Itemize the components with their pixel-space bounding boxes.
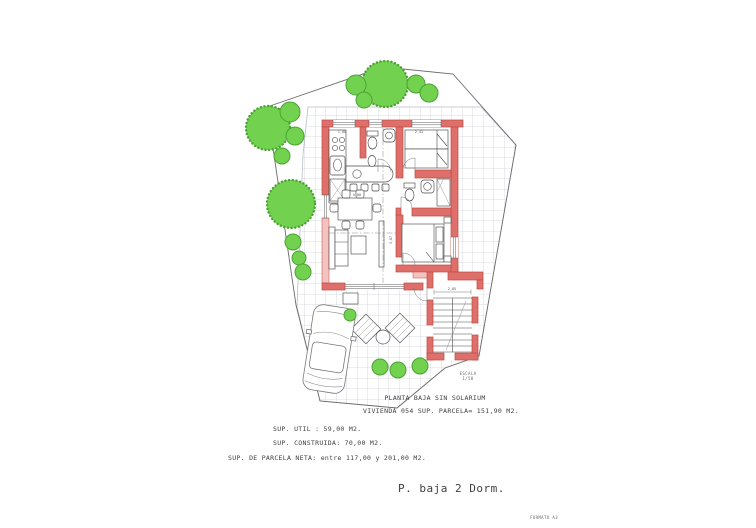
sofa-seat xyxy=(335,230,348,266)
master-bedroom xyxy=(402,217,451,265)
dim-bedroom2: 2,41 xyxy=(415,130,423,134)
pillow xyxy=(436,227,443,242)
dim-living-w: 5,00 xyxy=(353,193,361,197)
plan-title: PLANTA BAJA SIN SOLARIUM xyxy=(384,394,485,402)
surface-info: SUP. UTIL : 59,00 M2. SUP. CONSTRUIDA: 7… xyxy=(228,425,426,462)
washbasin-icon xyxy=(421,180,434,193)
nightstand xyxy=(444,217,451,223)
dim-living-d: 3,87 xyxy=(389,236,393,244)
footer: P. baja 2 Dorm. FORMATO A3 xyxy=(398,482,558,520)
scale-note: ESCALA 1/50 xyxy=(460,371,477,381)
car-mirror xyxy=(306,329,312,334)
scale-value: 1/50 xyxy=(462,376,473,381)
coffee-table xyxy=(351,236,366,254)
sofa-back xyxy=(329,227,335,269)
plan-subtitle: VIVIENDA 054 SUP. PARCELA= 151,90 M2. xyxy=(363,407,519,415)
toilet-icon xyxy=(404,183,415,201)
outdoor-table xyxy=(376,330,390,344)
sup-util: SUP. UTIL : 59,00 M2. xyxy=(273,425,361,433)
sup-construida: SUP. CONSTRUIDA: 70,00 M2. xyxy=(273,439,383,447)
dining-table xyxy=(338,198,372,220)
bedroom-2 xyxy=(403,130,448,170)
toilet-icon xyxy=(367,131,378,149)
car-mirror xyxy=(351,336,357,341)
dim-kitchen: 1,80 xyxy=(338,130,346,134)
nightstand xyxy=(444,256,451,262)
tree xyxy=(267,180,315,228)
stair-dimension: 2,85 xyxy=(448,287,456,291)
washbasin-icon xyxy=(383,129,395,142)
bidet-icon xyxy=(368,156,376,167)
plan-type-label: P. baja 2 Dorm. xyxy=(398,482,505,495)
sup-parcela-neta: SUP. DE PARCELA NETA: entre 117,00 y 201… xyxy=(228,454,426,462)
format-note: FORMATO A3 xyxy=(530,515,558,520)
floor-plan-page: 2,85 1,80 2,41 5,00 3,87 xyxy=(0,0,756,528)
shower-icon xyxy=(437,179,450,206)
floor-plan-drawing: 2,85 1,80 2,41 5,00 3,87 xyxy=(0,0,756,528)
outdoor-step xyxy=(343,293,358,304)
car-roof xyxy=(309,341,347,373)
pillow xyxy=(436,244,443,259)
kitchen-sink-icon xyxy=(330,156,345,175)
